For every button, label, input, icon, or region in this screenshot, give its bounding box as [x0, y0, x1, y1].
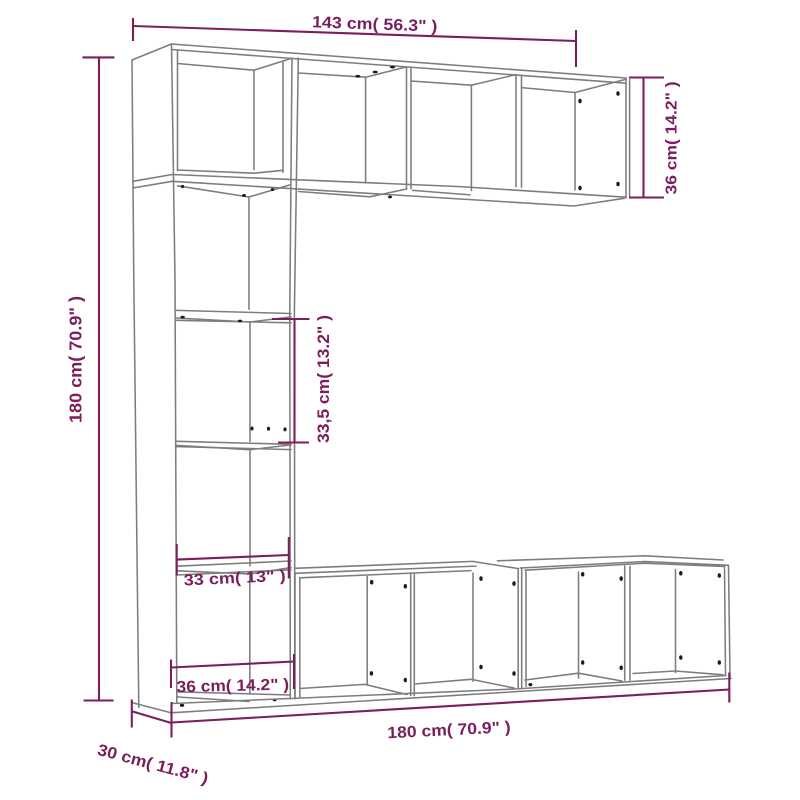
svg-text:180 cm( 70.9" ): 180 cm( 70.9" ): [66, 296, 86, 423]
svg-text:33,5 cm( 13.2" ): 33,5 cm( 13.2" ): [314, 315, 333, 443]
svg-text:36 cm( 14.2" ): 36 cm( 14.2" ): [176, 676, 289, 697]
svg-text:36 cm( 14.2" ): 36 cm( 14.2" ): [664, 82, 681, 195]
